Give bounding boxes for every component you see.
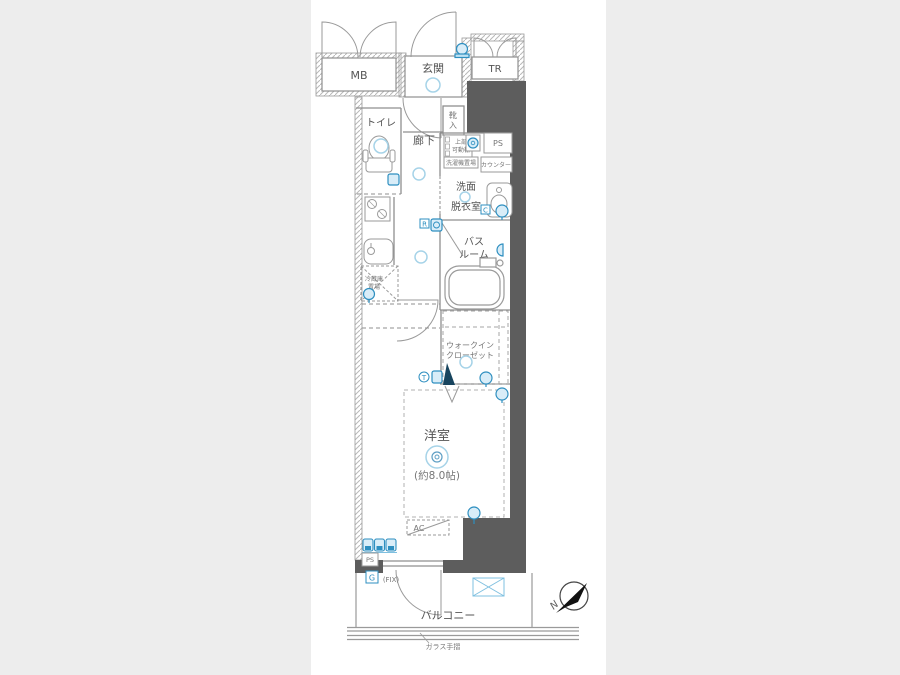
svg-text:PS: PS bbox=[493, 139, 503, 148]
floor-plan-page: MB 玄関 TR bbox=[0, 0, 900, 675]
counter: カウンター bbox=[481, 157, 512, 172]
washer-area: 上部 可動棚 洗濯機置場 bbox=[444, 135, 480, 168]
ps-bottom: PS bbox=[362, 553, 378, 566]
entry-device-icon bbox=[432, 371, 442, 383]
svg-text:カウンター: カウンター bbox=[481, 161, 511, 169]
hallway-label: 廊下 bbox=[413, 133, 435, 147]
entrance-label: 玄関 bbox=[422, 61, 444, 75]
meter-box-label: MB bbox=[350, 69, 367, 82]
svg-text:洗面: 洗面 bbox=[456, 181, 476, 193]
upper-shelf-label-1: 上部 bbox=[455, 138, 467, 146]
svg-text:R: R bbox=[422, 221, 427, 229]
svg-text:PS: PS bbox=[366, 556, 374, 564]
svg-text:C: C bbox=[483, 207, 488, 215]
main-room-size: (約8.0帖) bbox=[414, 469, 460, 482]
badge-r: R bbox=[420, 219, 429, 229]
svg-text:G: G bbox=[369, 574, 375, 583]
glass-rail-label: ガラス手摺 bbox=[426, 642, 461, 651]
svg-text:靴: 靴 bbox=[449, 110, 457, 120]
stove-icon bbox=[365, 197, 390, 221]
fridge-label-1: 冷蔵庫 bbox=[365, 275, 383, 283]
svg-text:バス: バス bbox=[464, 236, 484, 248]
washing-machine-icon bbox=[466, 135, 480, 151]
water-heater-icons bbox=[362, 539, 397, 553]
range-device-icon bbox=[431, 219, 442, 231]
washer-place-label: 洗濯機置場 bbox=[446, 159, 476, 167]
svg-text:T: T bbox=[421, 374, 427, 382]
fix-label: (FIX) bbox=[383, 576, 400, 584]
svg-text:ウォークイン: ウォークイン bbox=[446, 341, 494, 350]
badge-t: T bbox=[419, 372, 429, 382]
intercom-icon bbox=[455, 44, 469, 58]
trunk-room-label: TR bbox=[487, 64, 501, 75]
badge-c: C bbox=[481, 205, 490, 215]
sink-icon bbox=[364, 239, 393, 264]
toilet-washlet-icon bbox=[388, 174, 399, 185]
badge-g: G bbox=[366, 571, 378, 583]
toilet-label: トイレ bbox=[366, 118, 396, 129]
svg-text:入: 入 bbox=[449, 121, 457, 130]
ac-label: AC bbox=[414, 524, 425, 533]
floor-plan: MB 玄関 TR bbox=[0, 0, 900, 675]
balcony-label: バルコニー bbox=[421, 609, 476, 622]
main-room-label: 洋室 bbox=[424, 428, 450, 444]
ps-top: PS bbox=[484, 133, 512, 153]
